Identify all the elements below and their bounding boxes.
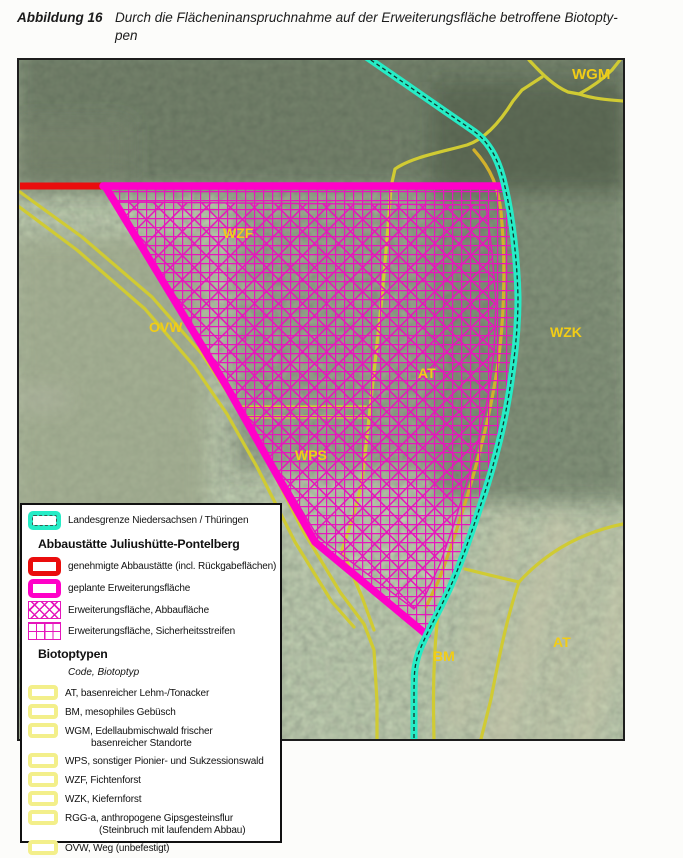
legend-row-wgm: WGM, Edellaubmischwald frischerbasenreic… [28,722,276,749]
document-page: Abbildung 16 Durch die Flächeninanspruch… [0,0,683,858]
approved-site-symbol [28,557,61,576]
biotope-symbol-wzk [28,791,58,806]
security-strip-label: Erweiterungsfläche, Sicherheitsstreifen [68,622,235,638]
planned-expansion-symbol [28,579,61,598]
map-label-wzf: WZF [223,225,254,241]
map-label-at-center: AT [418,365,436,381]
biotope-symbol-at [28,685,58,700]
biotope-label-wzk: WZK, Kiefernforst [65,790,141,806]
map-label-bm: BM [433,648,455,664]
legend-row-bm: BM, mesophiles Gebüsch [28,703,276,719]
biotope-label-rgg: RGG-a, anthropogene Gipsgesteinsflur(Ste… [65,809,245,836]
biotope-label-rgg-line2: (Steinbruch mit laufendem Abbau) [99,825,245,837]
legend-row-approved-site: genehmigte Abbaustätte (incl. Rückgabefl… [28,557,276,576]
state-border-symbol [28,511,61,530]
biotope-label-wgm: WGM, Edellaubmischwald frischerbasenreic… [65,722,213,749]
legend-section-abbaustaette-title: Abbaustätte Juliushütte-Pontelberg [38,537,276,551]
legend-section-biotoptypen-title: Biotoptypen [38,647,276,661]
legend-row-security-strip: Erweiterungsfläche, Sicherheitsstreifen [28,622,276,640]
planned-expansion-label: geplante Erweiterungsfläche [68,579,190,595]
legend-row-rgg: RGG-a, anthropogene Gipsgesteinsflur(Ste… [28,809,276,836]
figure-caption: Abbildung 16 Durch die Flächeninanspruch… [17,9,675,45]
biotope-symbol-wgm [28,723,58,738]
biotope-label-wps: WPS, sonstiger Pionier- und Sukzessionsw… [65,752,264,768]
biotope-symbol-rgg [28,810,58,825]
biotope-symbol-bm [28,704,58,719]
approved-site-label: genehmigte Abbaustätte (incl. Rückgabefl… [68,557,276,573]
legend-row-wps: WPS, sonstiger Pionier- und Sukzessionsw… [28,752,276,768]
map-label-wps: WPS [295,447,327,463]
biotope-symbol-ovw [28,840,58,855]
biotope-symbol-wzf [28,772,58,787]
biotope-label-at: AT, basenreicher Lehm-/Tonacker [65,684,209,700]
state-border-label: Landesgrenze Niedersachsen / Thüringen [68,511,248,527]
mining-area-label: Erweiterungsfläche, Abbaufläche [68,601,209,617]
caption-line-1: Durch die Flächeninanspruchnahme auf der… [115,9,618,27]
biotope-label-bm: BM, mesophiles Gebüsch [65,703,176,719]
legend-row-ovw: OVW, Weg (unbefestigt) [28,839,276,855]
biotope-symbol-wps [28,753,58,768]
biotope-label-wgm-line2: basenreicher Standorte [91,738,213,750]
map-label-ovw: OVW [149,319,183,335]
caption-line-2: pen [115,27,618,45]
security-strip-symbol [28,622,61,640]
map-label-wgm: WGM [572,66,610,83]
legend-row-wzk: WZK, Kiefernforst [28,790,276,806]
legend-row-wzf: WZF, Fichtenforst [28,771,276,787]
map-label-at-right: AT [553,634,571,650]
biotope-label-wgm-line1: WGM, Edellaubmischwald frischer [65,726,213,737]
legend-row-at: AT, basenreicher Lehm-/Tonacker [28,684,276,700]
figure-caption-text: Durch die Flächeninanspruchnahme auf der… [115,9,618,45]
biotope-label-ovw: OVW, Weg (unbefestigt) [65,839,169,855]
figure-number: Abbildung 16 [17,9,115,45]
legend-row-planned-expansion: geplante Erweiterungsfläche [28,579,276,598]
biotope-label-rgg-line1: RGG-a, anthropogene Gipsgesteinsflur [65,813,233,824]
legend-row-mining-area: Erweiterungsfläche, Abbaufläche [28,601,276,619]
biotope-label-wzf: WZF, Fichtenforst [65,771,141,787]
mining-area-symbol [28,601,61,619]
map-legend: Landesgrenze Niedersachsen / Thüringen A… [20,503,282,843]
map-label-wzk: WZK [550,324,582,340]
legend-biotope-subtitle: Code, Biotoptyp [68,667,276,678]
legend-row-state-border: Landesgrenze Niedersachsen / Thüringen [28,511,276,530]
